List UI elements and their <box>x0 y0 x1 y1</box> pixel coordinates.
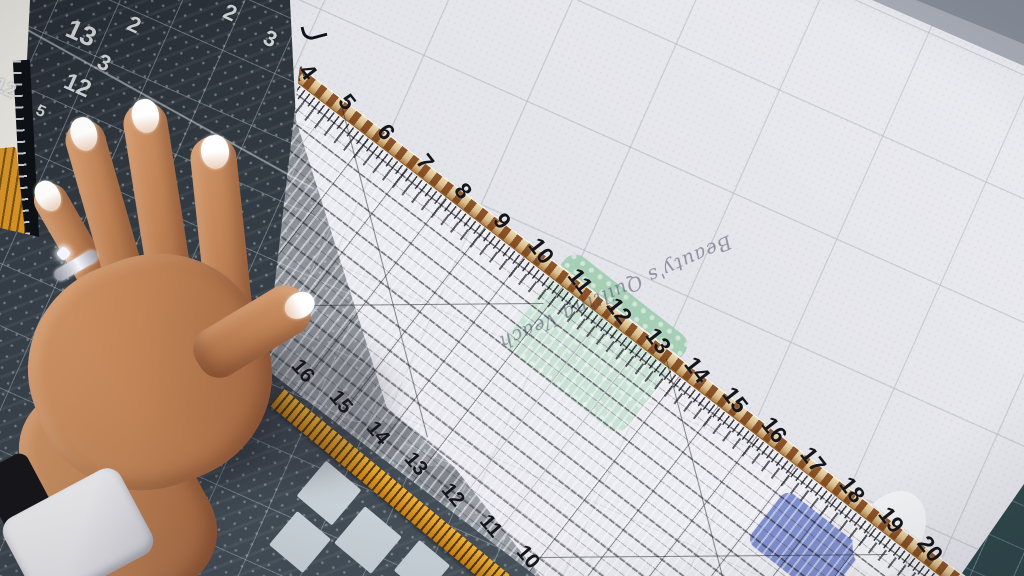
hand <box>0 0 1024 576</box>
photo-quilting-scene: 1322312312518 16151413121110 45678910111… <box>0 0 1024 576</box>
